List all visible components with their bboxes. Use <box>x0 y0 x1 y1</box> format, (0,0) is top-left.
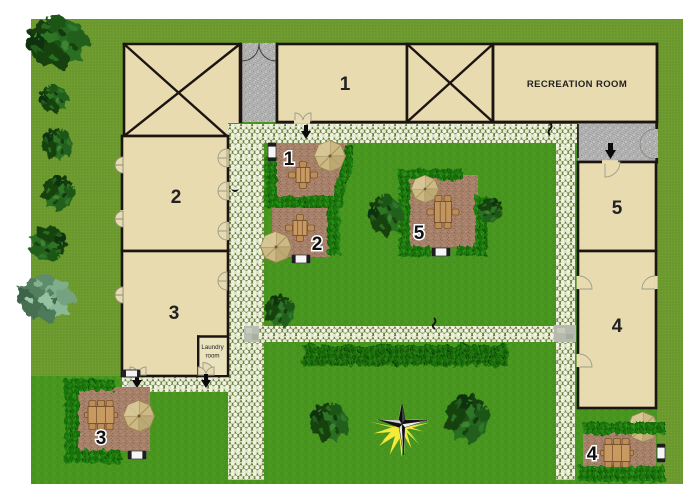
svg-text:2: 2 <box>171 187 182 208</box>
svg-text:5: 5 <box>612 198 623 219</box>
svg-text:4: 4 <box>587 444 598 465</box>
svg-text:2: 2 <box>312 234 323 255</box>
svg-text:3: 3 <box>169 303 180 324</box>
svg-text:1: 1 <box>340 74 351 95</box>
svg-text:RECREATION ROOM: RECREATION ROOM <box>527 79 627 90</box>
svg-text:1: 1 <box>284 149 295 170</box>
svg-text:3: 3 <box>96 428 107 449</box>
svg-text:4: 4 <box>612 316 623 337</box>
svg-text:5: 5 <box>414 223 425 244</box>
svg-text:room: room <box>205 353 219 360</box>
svg-text:Laundry: Laundry <box>201 344 224 351</box>
